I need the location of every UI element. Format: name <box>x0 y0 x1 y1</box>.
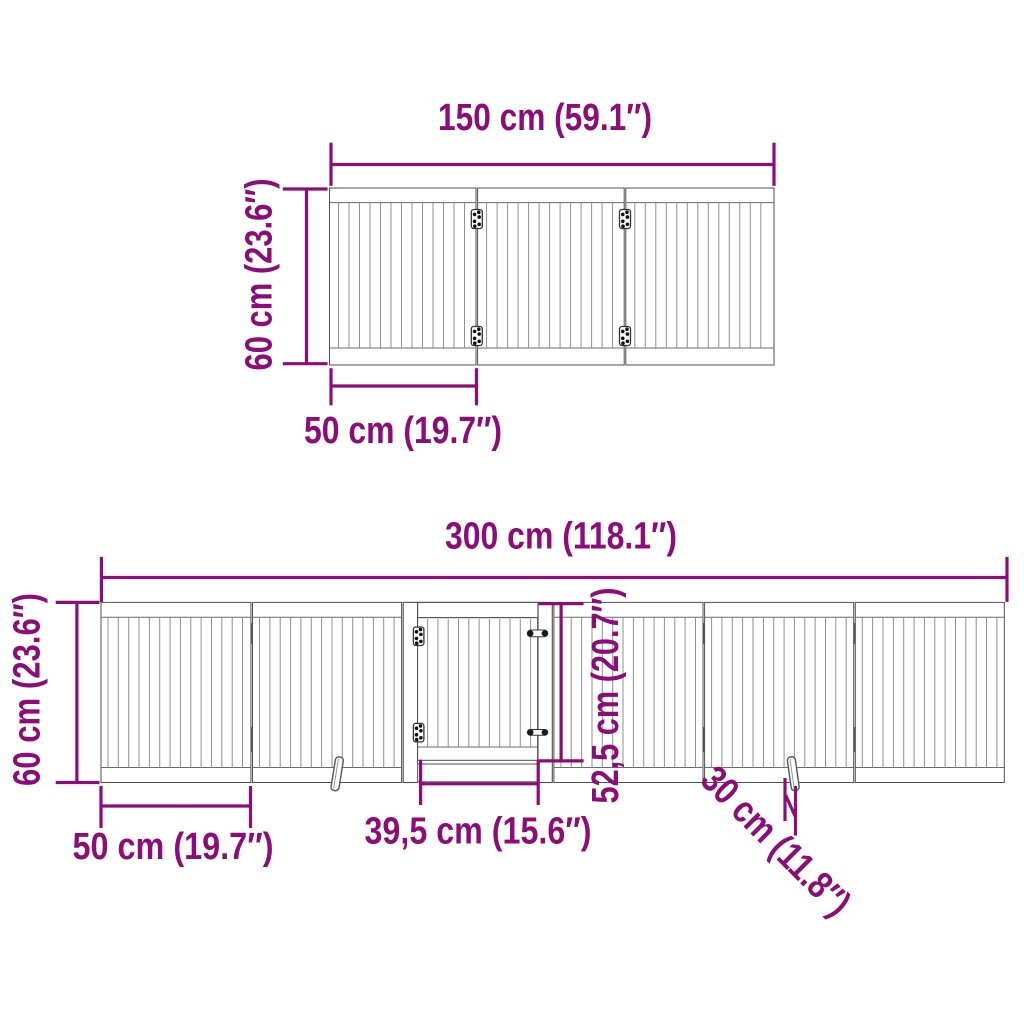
svg-text:60 cm (23.6″): 60 cm (23.6″) <box>6 593 48 786</box>
svg-text:50 cm (19.7″): 50 cm (19.7″) <box>73 826 274 868</box>
svg-text:60 cm (23.6″): 60 cm (23.6″) <box>239 179 281 371</box>
svg-text:39,5 cm (15.6″): 39,5 cm (15.6″) <box>365 811 592 853</box>
svg-text:50 cm (19.7″): 50 cm (19.7″) <box>304 410 502 452</box>
svg-text:300 cm (118.1″): 300 cm (118.1″) <box>445 516 677 558</box>
svg-text:150 cm (59.1″): 150 cm (59.1″) <box>438 97 652 139</box>
svg-text:52,5 cm (20.7″): 52,5 cm (20.7″) <box>585 588 627 804</box>
